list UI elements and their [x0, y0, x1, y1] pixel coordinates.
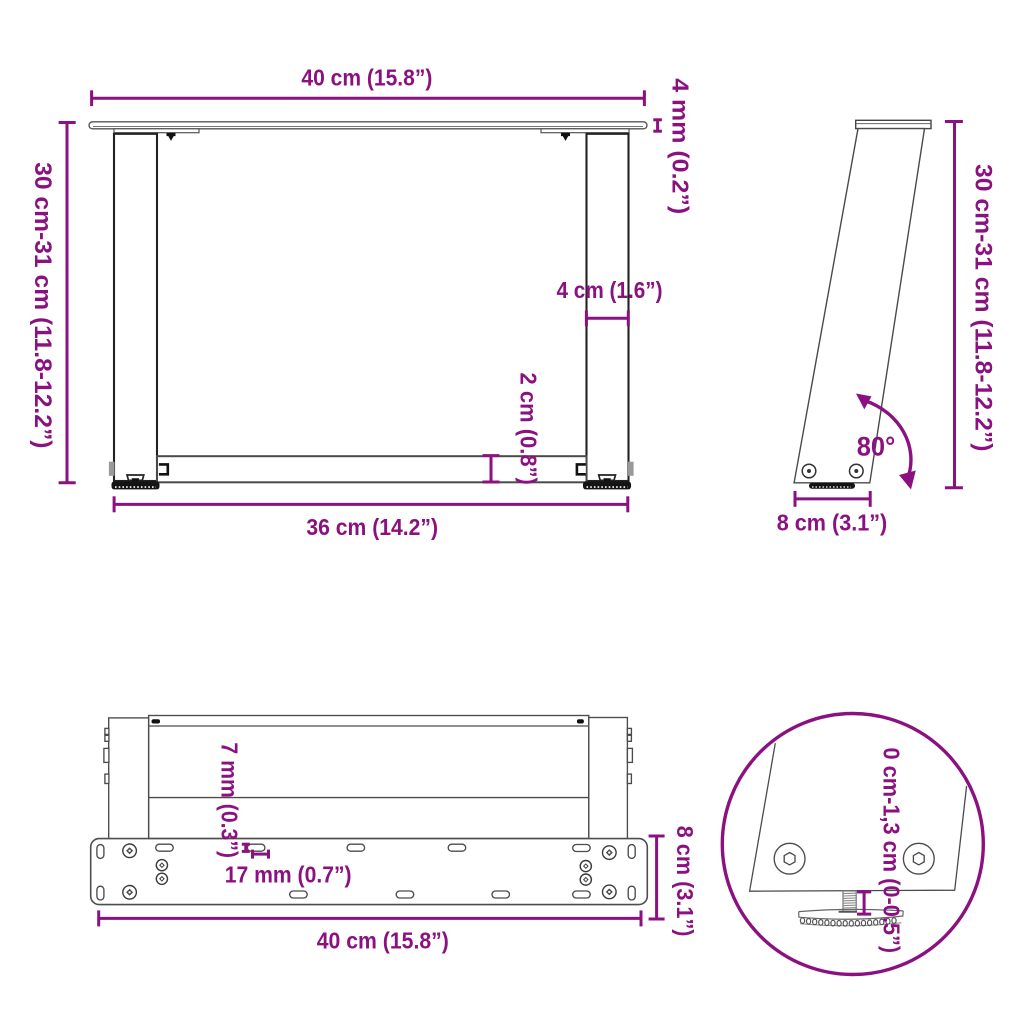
svg-text:2 cm (0.8”): 2 cm (0.8”): [515, 373, 541, 485]
svg-text:80°: 80°: [857, 432, 896, 462]
svg-text:4 mm (0.2”): 4 mm (0.2”): [667, 78, 693, 214]
svg-text:30 cm-31 cm (11.8-12.2”): 30 cm-31 cm (11.8-12.2”): [970, 164, 997, 452]
svg-text:40 cm (15.8”): 40 cm (15.8”): [317, 927, 449, 953]
svg-text:36 cm (14.2”): 36 cm (14.2”): [306, 514, 438, 540]
svg-text:30 cm-31 cm (11.8-12.2”): 30 cm-31 cm (11.8-12.2”): [29, 162, 56, 448]
svg-text:0 cm-1,3 cm (0-0.5”): 0 cm-1,3 cm (0-0.5”): [878, 747, 904, 953]
svg-text:17 mm (0.7”): 17 mm (0.7”): [225, 861, 352, 887]
svg-text:8 cm (3.1”): 8 cm (3.1”): [672, 826, 698, 937]
svg-text:4 cm (1.6”): 4 cm (1.6”): [557, 277, 663, 303]
svg-text:8 cm (3.1”): 8 cm (3.1”): [777, 510, 888, 536]
svg-text:40 cm (15.8”): 40 cm (15.8”): [301, 64, 432, 90]
svg-text:7 mm (0.3”): 7 mm (0.3”): [216, 742, 242, 858]
